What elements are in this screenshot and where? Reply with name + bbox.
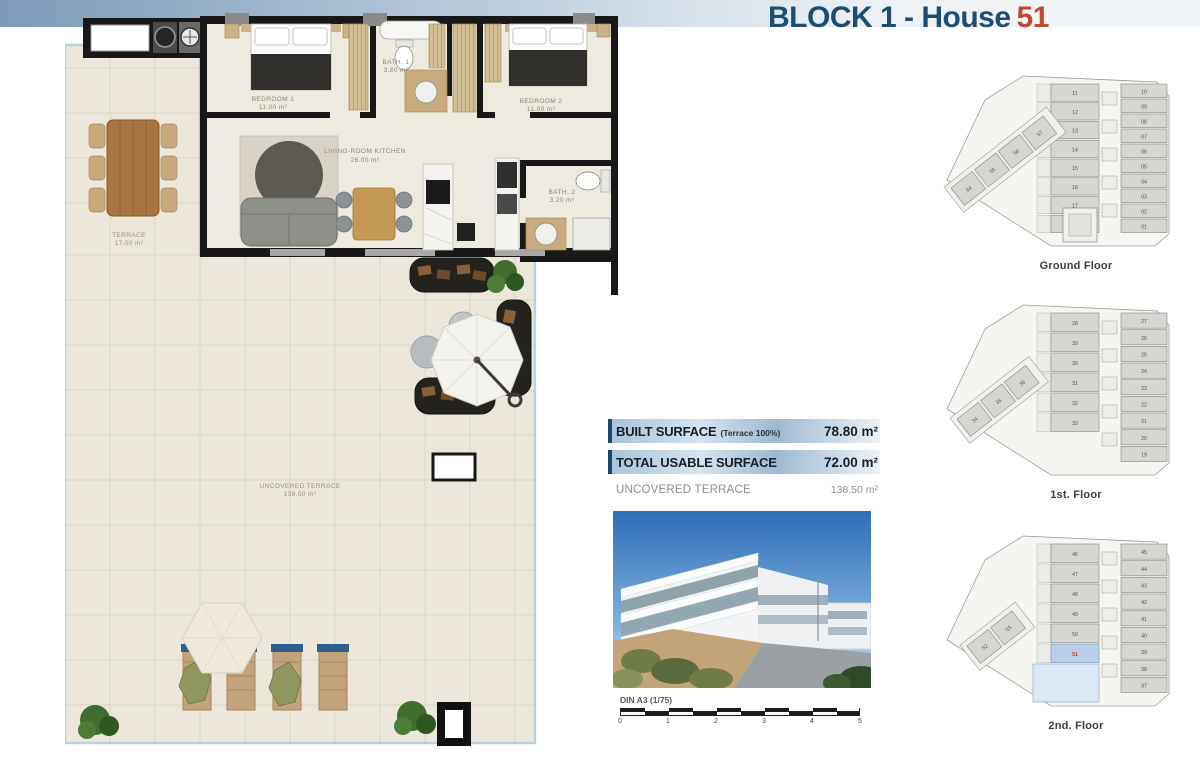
keyplan-label: Ground Floor: [930, 260, 1186, 272]
core: [1102, 148, 1117, 161]
keyplan-drawing: 1009080706050403020111121314151617185455…: [930, 70, 1186, 256]
balcony-strip: [1037, 197, 1051, 214]
core: [1102, 349, 1117, 362]
keyplan-first-floor: 272625242322212019282930313233343536 1st…: [930, 299, 1186, 501]
surface-table: BUILT SURFACE (Terrace 100%) 78.80 m² TO…: [608, 419, 880, 506]
room-label: TERRACE: [112, 232, 146, 239]
room-label: LIVING-ROOM KITCHEN: [324, 148, 406, 155]
room-area: 3.80 m²: [384, 67, 409, 74]
balcony-strip: [1037, 333, 1051, 352]
balcony-strip: [1037, 215, 1051, 232]
core: [1102, 636, 1117, 649]
unit-number: 21: [1141, 419, 1147, 425]
room-area: 138.50 m²: [284, 491, 317, 498]
core: [1102, 405, 1117, 418]
unit-number: 06: [1141, 149, 1147, 155]
unit-number: 47: [1072, 572, 1078, 578]
core: [1102, 580, 1117, 593]
unit-number: 05: [1141, 164, 1147, 170]
balcony-strip: [1037, 604, 1051, 623]
unit-number: 20: [1141, 436, 1147, 442]
unit-number: 50: [1072, 632, 1078, 638]
core: [1102, 120, 1117, 133]
keyplan-second-floor: 4544434241403938374647484950515253 2nd. …: [930, 530, 1186, 732]
unit-number: 03: [1141, 194, 1147, 200]
unit-number: 16: [1072, 185, 1078, 191]
core: [1102, 433, 1117, 446]
balcony-strip: [1037, 178, 1051, 195]
room-area: 26.00 m²: [351, 157, 380, 164]
unit-number: 48: [1072, 592, 1078, 598]
scale-tick: 1: [666, 718, 670, 725]
keyplan-drawing: 4544434241403938374647484950515253: [930, 530, 1186, 716]
core: [1102, 92, 1117, 105]
unit-number: 29: [1072, 341, 1078, 347]
building-photo: [613, 511, 871, 688]
row-label: BUILT SURFACE: [608, 424, 716, 439]
highlight-terrace: [1033, 664, 1099, 702]
keyplan-label: 2nd. Floor: [930, 720, 1186, 732]
table-row: TOTAL USABLE SURFACE 72.00 m²: [608, 450, 880, 474]
outdoor-lounge-set: [410, 258, 531, 414]
unit-number: 27: [1141, 319, 1147, 325]
scale-tick: 5: [858, 718, 862, 725]
row-note: (Terrace 100%): [720, 425, 780, 438]
scale-bar: DIN A3 (1/75) 012345: [620, 695, 860, 728]
balcony-strip: [1037, 353, 1051, 372]
scale-bar-row: [620, 711, 860, 716]
scale-tick: 2: [714, 718, 718, 725]
unit-number: 37: [1141, 683, 1147, 689]
table-row: BUILT SURFACE (Terrace 100%) 78.80 m²: [608, 419, 880, 443]
balcony-strip: [1037, 544, 1051, 563]
keyplan-drawing: 272625242322212019282930313233343536: [930, 299, 1186, 485]
balcony-strip: [1037, 393, 1051, 412]
building-photo-art: [613, 511, 871, 688]
scale-ticks: 012345: [620, 718, 860, 728]
core: [1102, 321, 1117, 334]
scale-tick: 3: [762, 718, 766, 725]
page-title: BLOCK 1 - House51: [768, 1, 1049, 35]
unit-number: 14: [1072, 147, 1078, 153]
balcony-strip: [1037, 313, 1051, 332]
room-area: 3.20 m²: [550, 197, 575, 204]
unit-number: 19: [1141, 452, 1147, 458]
balcony-strip: [1037, 584, 1051, 603]
title-house-number: 51: [1017, 1, 1049, 34]
unit-number: 42: [1141, 600, 1147, 606]
unit-number: 22: [1141, 402, 1147, 408]
terrace-dining-set: [89, 120, 177, 216]
unit-number: 39: [1141, 650, 1147, 656]
unit-number: 45: [1141, 550, 1147, 556]
unit-number: 10: [1141, 89, 1147, 95]
room-label: BATH. 1: [383, 59, 410, 66]
unit-number: 28: [1072, 321, 1078, 327]
unit-number: 38: [1141, 667, 1147, 673]
keyplan-label: 1st. Floor: [930, 489, 1186, 501]
main-floorplan: BEDROOM 1 11.00 m² BATH. 1 3.80 m² BEDRO…: [65, 8, 621, 748]
unit-number: 41: [1141, 617, 1147, 623]
unit-number: 40: [1141, 633, 1147, 639]
balcony-strip: [1037, 624, 1051, 643]
scale-tick: 4: [810, 718, 814, 725]
unit-number: 25: [1141, 352, 1147, 358]
unit-number: 23: [1141, 386, 1147, 392]
unit-number: 12: [1072, 110, 1078, 116]
row-label: UNCOVERED TERRACE: [608, 484, 751, 496]
core: [1102, 176, 1117, 189]
brochure-page: BLOCK 1 - House51: [0, 0, 1200, 763]
unit-number: 09: [1141, 104, 1147, 110]
core: [1102, 552, 1117, 565]
utility-box: [437, 702, 471, 746]
unit-number: 07: [1141, 134, 1147, 140]
core: [1102, 608, 1117, 621]
room-area: 17.00 m²: [115, 240, 144, 247]
room-label: BATH. 2: [549, 189, 576, 196]
unit-number: 43: [1141, 583, 1147, 589]
unit-number: 08: [1141, 119, 1147, 125]
table-row: UNCOVERED TERRACE 138.50 m²: [608, 481, 880, 499]
core: [1102, 664, 1117, 677]
balcony-strip: [1037, 644, 1051, 663]
keyplan-ground-floor: 1009080706050403020111121314151617185455…: [930, 70, 1186, 272]
unit-number: 15: [1072, 166, 1078, 172]
row-value: 78.80 m²: [824, 424, 880, 439]
room-area: 11.00 m²: [259, 104, 288, 111]
room-area: 11.00 m²: [527, 106, 556, 113]
unit-number: 49: [1072, 612, 1078, 618]
balcony-strip: [1037, 564, 1051, 583]
room-label: BEDROOM 1: [252, 96, 295, 103]
balcony-strip: [1037, 413, 1051, 432]
unit-number: 11: [1072, 91, 1077, 97]
room-label: UNCOVERED TERRACE: [259, 483, 340, 490]
unit-number: 31: [1072, 381, 1078, 387]
core: [1102, 377, 1117, 390]
unit-number: 46: [1072, 552, 1078, 558]
unit-number: 44: [1141, 567, 1147, 573]
row-label: TOTAL USABLE SURFACE: [608, 455, 777, 470]
unit-number: 30: [1072, 361, 1078, 367]
unit-number: 01: [1141, 224, 1147, 230]
unit-number: 02: [1141, 209, 1147, 215]
planter-box: [433, 454, 475, 480]
unit-number: 04: [1141, 179, 1147, 185]
unit-number: 24: [1141, 369, 1147, 375]
unit-number: 32: [1072, 401, 1078, 407]
balcony-strip: [1037, 159, 1051, 176]
core: [1102, 204, 1117, 217]
unit-number: 26: [1141, 336, 1147, 342]
room-label: BEDROOM 2: [520, 98, 563, 105]
floorplan-drawing: BEDROOM 1 11.00 m² BATH. 1 3.80 m² BEDRO…: [65, 8, 621, 748]
unit-number: 51: [1072, 652, 1078, 658]
outdoor-kitchen: [83, 18, 203, 58]
unit-number: 13: [1072, 129, 1078, 135]
hall-closet: [453, 24, 476, 112]
row-value: 138.50 m²: [831, 484, 880, 496]
scale-tick: 0: [618, 718, 622, 725]
title-block-text: BLOCK 1 - House: [768, 1, 1011, 34]
row-value: 72.00 m²: [824, 455, 880, 470]
balcony-strip: [1037, 84, 1051, 101]
unit-number: 33: [1072, 421, 1078, 427]
scale-label: DIN A3 (1/75): [620, 695, 860, 705]
